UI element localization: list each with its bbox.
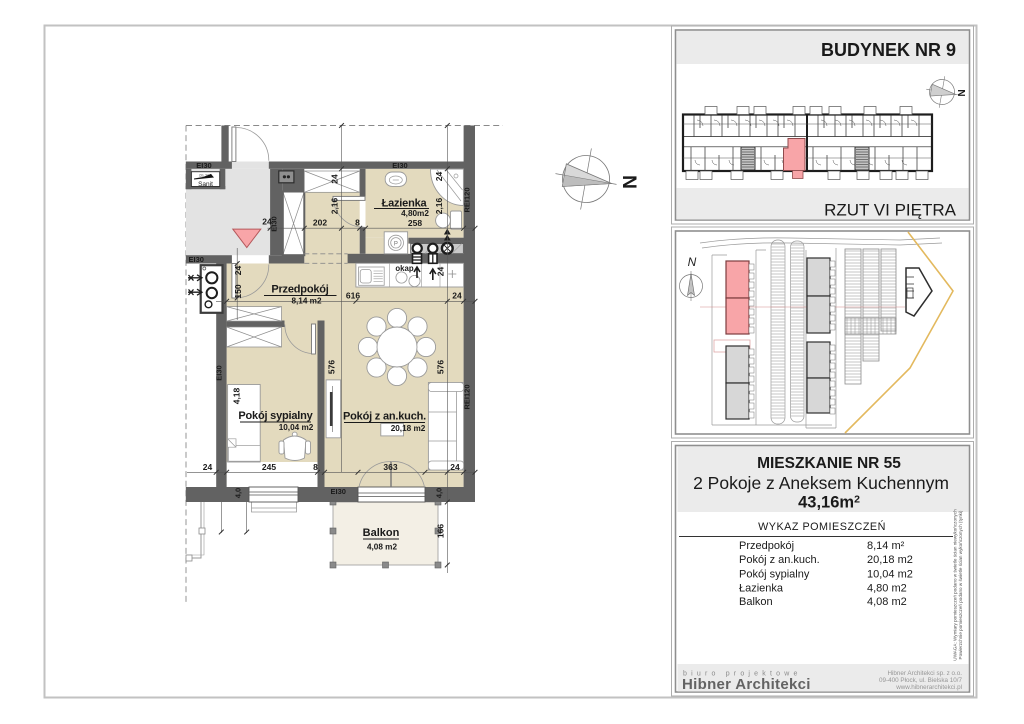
svg-text:Pokój z an.kuch.: Pokój z an.kuch. bbox=[739, 554, 820, 566]
svg-text:4,18: 4,18 bbox=[232, 387, 242, 404]
svg-text:Sanit: Sanit bbox=[198, 181, 213, 188]
svg-text:258: 258 bbox=[408, 218, 422, 228]
svg-text:24: 24 bbox=[436, 267, 446, 277]
svg-text:EI30: EI30 bbox=[189, 255, 204, 264]
svg-text:N: N bbox=[618, 175, 639, 189]
svg-text:363: 363 bbox=[383, 462, 397, 472]
svg-text:RZUT VI PIĘTRA: RZUT VI PIĘTRA bbox=[824, 201, 957, 220]
svg-text:4,0: 4,0 bbox=[435, 488, 444, 498]
svg-text:4,0: 4,0 bbox=[234, 488, 243, 498]
svg-text:24: 24 bbox=[329, 174, 339, 184]
svg-text:20,18 m2: 20,18 m2 bbox=[391, 424, 426, 433]
svg-text:Pokój z an.kuch.: Pokój z an.kuch. bbox=[343, 411, 426, 423]
svg-text:8,14 m²: 8,14 m² bbox=[867, 540, 905, 552]
svg-text:EI30: EI30 bbox=[331, 487, 346, 496]
svg-text:20,18 m2: 20,18 m2 bbox=[867, 554, 913, 566]
svg-text:Hibner Architekci: Hibner Architekci bbox=[682, 676, 811, 693]
svg-text:Powierzchnie pomieszczeń podan: Powierzchnie pomieszczeń podano w świetl… bbox=[958, 510, 963, 659]
svg-text:Balkon: Balkon bbox=[739, 596, 773, 608]
svg-text:Pokój sypialny: Pokój sypialny bbox=[238, 410, 313, 422]
svg-text:MIESZKANIE NR 55: MIESZKANIE NR 55 bbox=[757, 455, 901, 472]
svg-text:EI30: EI30 bbox=[269, 216, 278, 231]
svg-text:4,08 m2: 4,08 m2 bbox=[367, 543, 397, 552]
svg-text:2 Pokoje z Aneksem Kuchennym: 2 Pokoje z Aneksem Kuchennym bbox=[693, 473, 949, 493]
svg-text:2,16: 2,16 bbox=[434, 197, 444, 214]
svg-text:BUDYNEK NR 9: BUDYNEK NR 9 bbox=[821, 40, 956, 60]
svg-text:Przedpokój: Przedpokój bbox=[271, 284, 328, 296]
svg-text:N: N bbox=[688, 255, 697, 269]
svg-text:EI30: EI30 bbox=[392, 161, 407, 170]
svg-text:576: 576 bbox=[327, 360, 337, 374]
svg-text:Hibner Architekci sp. z o.o.: Hibner Architekci sp. z o.o. bbox=[887, 670, 962, 677]
svg-text:Pokój sypialny: Pokój sypialny bbox=[739, 569, 810, 581]
svg-text:okap: okap bbox=[395, 264, 413, 273]
svg-text:8: 8 bbox=[355, 218, 360, 228]
svg-text:24: 24 bbox=[233, 266, 243, 276]
svg-text:2,16: 2,16 bbox=[329, 197, 339, 214]
svg-text:8,14 m2: 8,14 m2 bbox=[291, 297, 321, 306]
svg-text:4,08 m2: 4,08 m2 bbox=[867, 596, 907, 608]
svg-text:09-400 Płock, ul. Bielska 10/7: 09-400 Płock, ul. Bielska 10/7 bbox=[879, 677, 962, 684]
svg-text:24: 24 bbox=[450, 462, 460, 472]
svg-text:616: 616 bbox=[346, 291, 360, 301]
svg-text:REI120: REI120 bbox=[462, 384, 471, 409]
svg-text:166: 166 bbox=[436, 524, 446, 538]
svg-text:24: 24 bbox=[203, 462, 213, 472]
svg-text:REI120: REI120 bbox=[462, 187, 471, 212]
svg-text:8: 8 bbox=[313, 462, 318, 472]
svg-text:202: 202 bbox=[313, 218, 327, 228]
svg-text:4,80m2: 4,80m2 bbox=[401, 209, 429, 218]
svg-text:10,04 m2: 10,04 m2 bbox=[867, 569, 913, 581]
svg-text:EI30: EI30 bbox=[196, 161, 211, 170]
svg-text:UWAGA: Wymiary pomieszczeń pod: UWAGA: Wymiary pomieszczeń podano w świe… bbox=[953, 509, 958, 661]
svg-text:P: P bbox=[394, 242, 398, 248]
svg-text:150: 150 bbox=[233, 284, 243, 298]
svg-text:Łazienka: Łazienka bbox=[739, 583, 784, 595]
svg-text:N: N bbox=[955, 89, 966, 96]
svg-text:Przedpokój: Przedpokój bbox=[739, 540, 794, 552]
svg-text:4,80 m2: 4,80 m2 bbox=[867, 583, 907, 595]
svg-text:24: 24 bbox=[434, 172, 444, 182]
svg-text:576: 576 bbox=[435, 360, 445, 374]
svg-text:Łazienka: Łazienka bbox=[382, 198, 428, 210]
svg-text:Balkon: Balkon bbox=[363, 527, 400, 539]
svg-text:www.hibnerarchitekci.pl: www.hibnerarchitekci.pl bbox=[895, 684, 962, 691]
svg-text:24: 24 bbox=[452, 291, 462, 301]
svg-text:10,04 m2: 10,04 m2 bbox=[279, 423, 314, 432]
svg-text:WYKAZ POMIESZCZEŃ: WYKAZ POMIESZCZEŃ bbox=[758, 520, 886, 533]
svg-text:43,16m2: 43,16m2 bbox=[798, 494, 860, 512]
svg-text:245: 245 bbox=[262, 462, 276, 472]
svg-text:EI30: EI30 bbox=[214, 365, 223, 380]
